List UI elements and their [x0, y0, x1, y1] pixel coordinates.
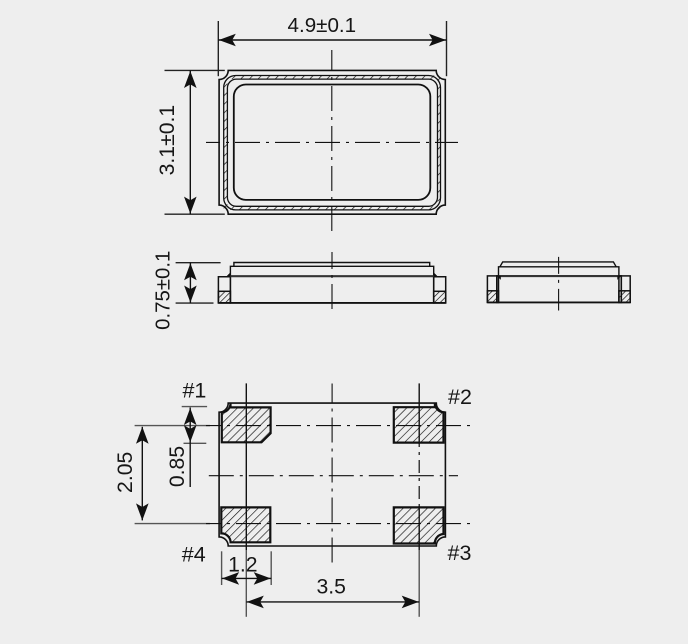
svg-text:1.2: 1.2: [228, 553, 257, 576]
svg-text:#3: #3: [448, 541, 472, 565]
svg-text:3.5: 3.5: [316, 576, 345, 599]
svg-text:0.85: 0.85: [166, 446, 189, 487]
svg-text:3.1±0.1: 3.1±0.1: [156, 105, 179, 176]
svg-text:#2: #2: [448, 385, 472, 409]
svg-text:2.05: 2.05: [114, 452, 137, 493]
svg-text:#1: #1: [182, 379, 206, 403]
svg-text:4.9±0.1: 4.9±0.1: [288, 14, 357, 37]
svg-text:0.75±0.1: 0.75±0.1: [153, 251, 175, 330]
svg-text:#4: #4: [182, 542, 206, 566]
